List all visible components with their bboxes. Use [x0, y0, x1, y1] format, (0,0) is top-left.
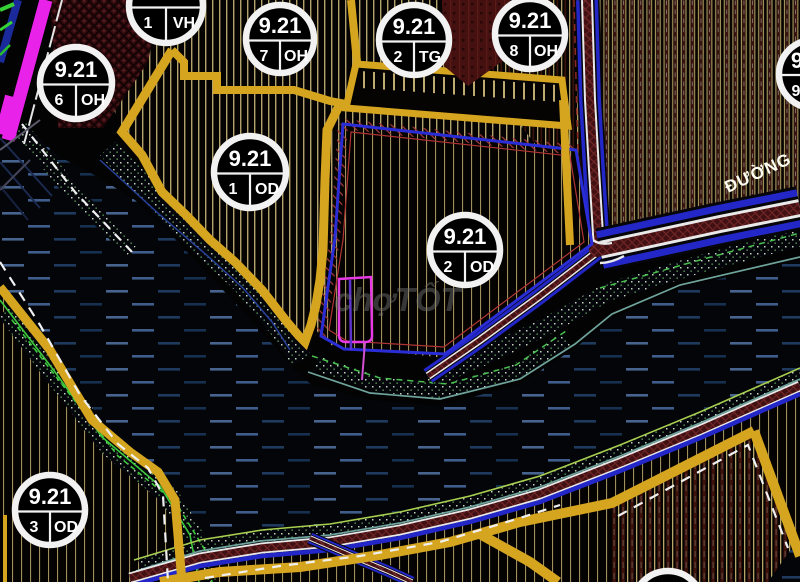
- svg-text:9: 9: [792, 83, 800, 100]
- svg-text:1: 1: [229, 181, 238, 198]
- svg-text:OH: OH: [81, 92, 105, 109]
- svg-text:2: 2: [394, 49, 403, 66]
- svg-text:TG: TG: [419, 49, 441, 66]
- svg-text:9.21: 9.21: [55, 57, 98, 82]
- svg-text:9.21: 9.21: [29, 484, 72, 509]
- svg-text:OH: OH: [284, 48, 308, 65]
- svg-text:6: 6: [55, 92, 64, 109]
- svg-text:9.21: 9.21: [509, 8, 552, 33]
- svg-text:9.21: 9.21: [393, 14, 436, 39]
- svg-text:9.21: 9.21: [229, 146, 272, 171]
- svg-text:1: 1: [144, 15, 153, 32]
- svg-text:3: 3: [30, 519, 39, 536]
- svg-text:OD: OD: [470, 259, 494, 276]
- svg-text:9.21: 9.21: [444, 224, 487, 249]
- svg-text:OH: OH: [534, 43, 558, 60]
- svg-text:8: 8: [510, 43, 519, 60]
- svg-text:chợTỐT: chợTỐT: [334, 280, 463, 318]
- svg-text:2: 2: [444, 259, 453, 276]
- svg-text:9.21: 9.21: [145, 0, 188, 5]
- svg-text:9: 9: [791, 48, 800, 73]
- svg-text:OD: OD: [255, 181, 279, 198]
- svg-text:VH: VH: [173, 15, 195, 32]
- svg-text:9.21: 9.21: [259, 13, 302, 38]
- svg-text:OD: OD: [54, 519, 78, 536]
- svg-text:7: 7: [260, 48, 269, 65]
